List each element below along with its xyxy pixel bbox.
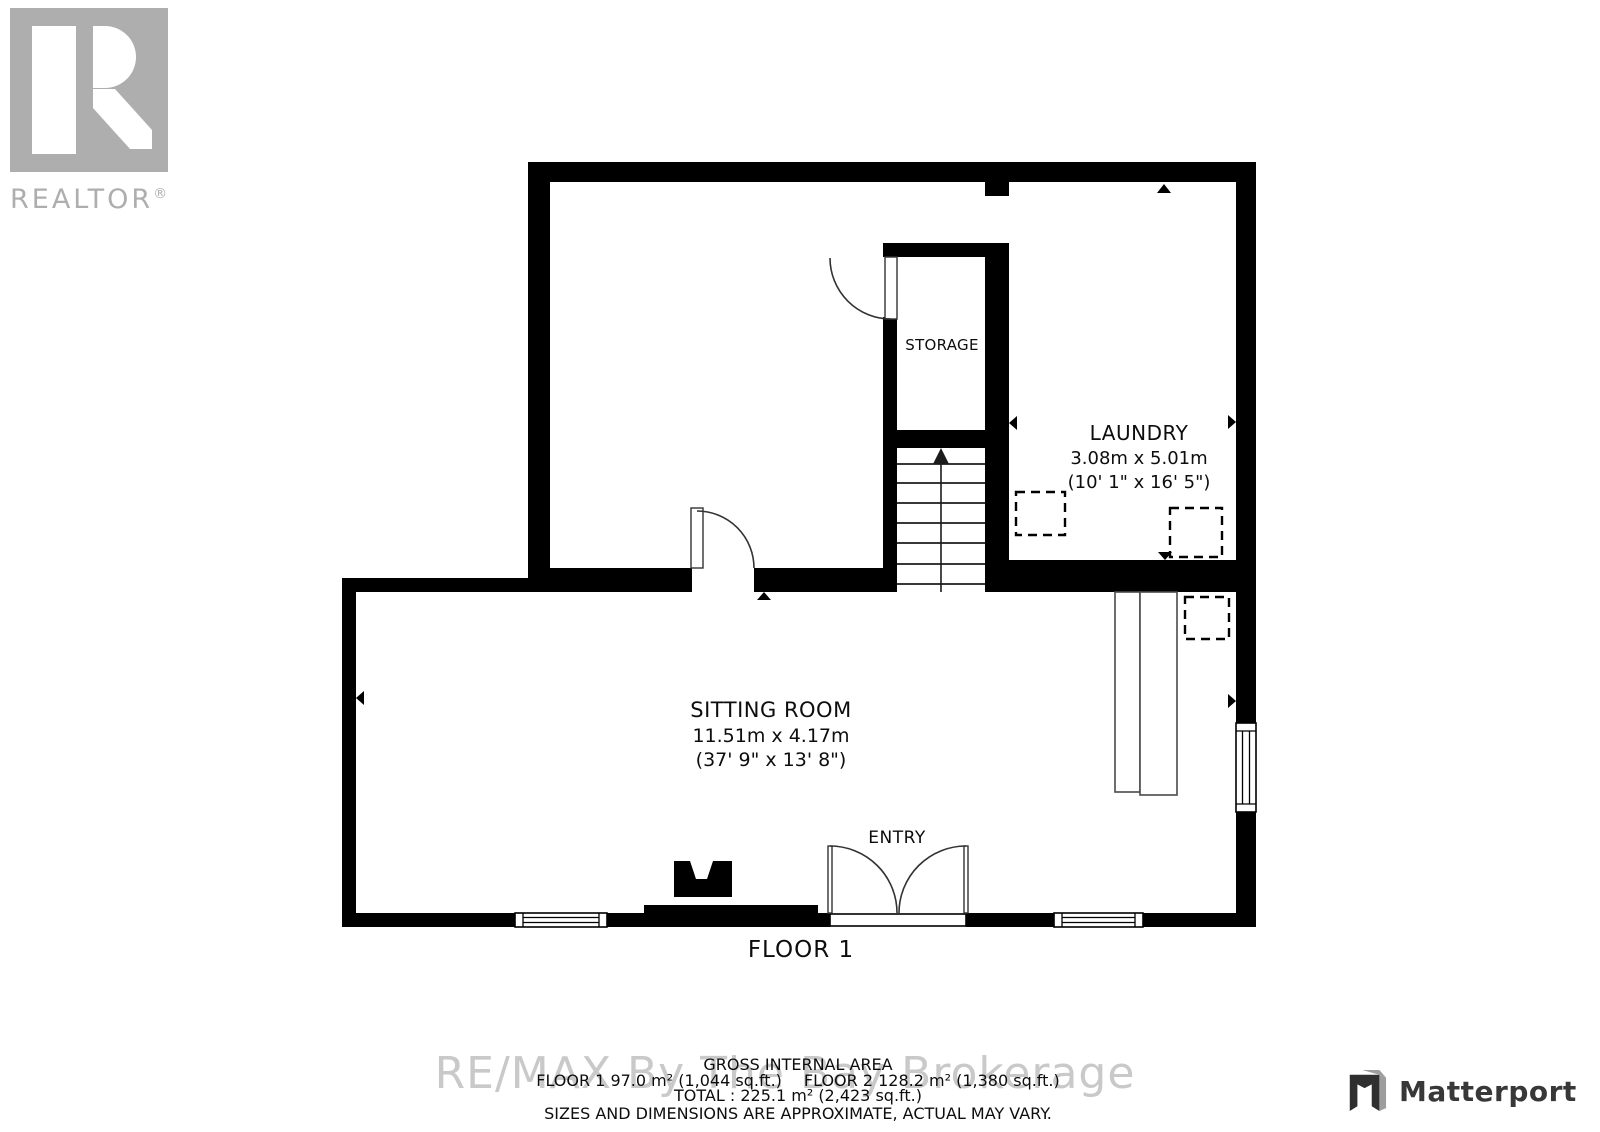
total-area-line: TOTAL : 225.1 m² (2,423 sq.ft.) — [674, 1086, 922, 1105]
walls — [342, 162, 1256, 927]
appliance-box-laundry-2 — [1170, 508, 1222, 557]
laundry-dim-imperial: (10' 1" x 16' 5") — [1068, 472, 1211, 493]
sitting-room-name: SITTING ROOM — [690, 698, 851, 722]
appliance-box-laundry-1 — [1016, 492, 1065, 535]
matterport-logo: Matterport — [1345, 1068, 1577, 1114]
window-right-wall — [1236, 723, 1256, 812]
floor-title: FLOOR 1 — [748, 937, 854, 963]
sitting-room-dim-metric: 11.51m x 4.17m — [690, 725, 851, 747]
realtor-wordmark: REALTOR® — [10, 184, 168, 215]
staircase — [897, 448, 985, 592]
furniture-outline-1 — [1115, 592, 1140, 792]
matterport-icon — [1345, 1068, 1387, 1114]
storage-door — [830, 257, 897, 319]
laundry-label: LAUNDRY 3.08m x 5.01m (10' 1" x 16' 5") — [1068, 421, 1211, 493]
sitting-room-dim-imperial: (37' 9" x 13' 8") — [690, 749, 851, 771]
realtor-r-icon — [10, 8, 168, 172]
laundry-name: LAUNDRY — [1068, 421, 1211, 445]
stairs-up-arrow-icon — [933, 448, 949, 464]
floorplan-page: REALTOR® RE/MAX By The Bay Brokerage — [0, 0, 1600, 1132]
disclaimer-line: SIZES AND DIMENSIONS ARE APPROXIMATE, AC… — [544, 1104, 1052, 1123]
appliance-box-sitting — [1185, 597, 1229, 639]
window-bottom-left — [515, 913, 607, 927]
window-bottom-right — [1054, 913, 1143, 927]
interior-door — [691, 508, 754, 568]
entry-label: ENTRY — [868, 828, 925, 848]
sitting-room-label: SITTING ROOM 11.51m x 4.17m (37' 9" x 13… — [690, 698, 851, 771]
realtor-logo: REALTOR® — [10, 8, 168, 215]
storage-label: STORAGE — [905, 336, 979, 354]
registered-mark-icon: ® — [153, 186, 167, 202]
laundry-dim-metric: 3.08m x 5.01m — [1068, 448, 1211, 469]
fireplace — [644, 861, 818, 915]
entry-double-door — [828, 846, 968, 926]
furniture-outline-2 — [1140, 592, 1177, 795]
matterport-wordmark: Matterport — [1399, 1075, 1577, 1108]
